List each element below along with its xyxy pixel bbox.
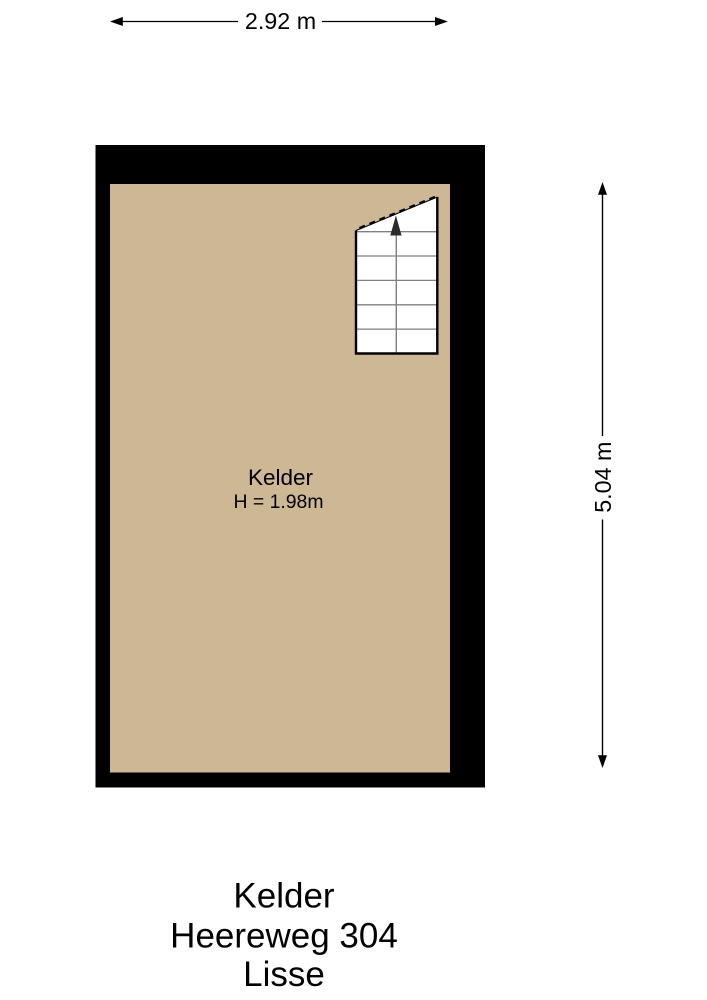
svg-text:Kelder: Kelder — [248, 465, 314, 490]
svg-text:2.92 m: 2.92 m — [245, 8, 316, 34]
svg-text:Kelder: Kelder — [233, 876, 335, 915]
svg-text:Lisse: Lisse — [243, 955, 325, 994]
svg-text:Heereweg 304: Heereweg 304 — [170, 917, 398, 956]
svg-text:5.04 m: 5.04 m — [590, 442, 616, 513]
svg-text:H = 1.98m: H = 1.98m — [234, 491, 324, 513]
